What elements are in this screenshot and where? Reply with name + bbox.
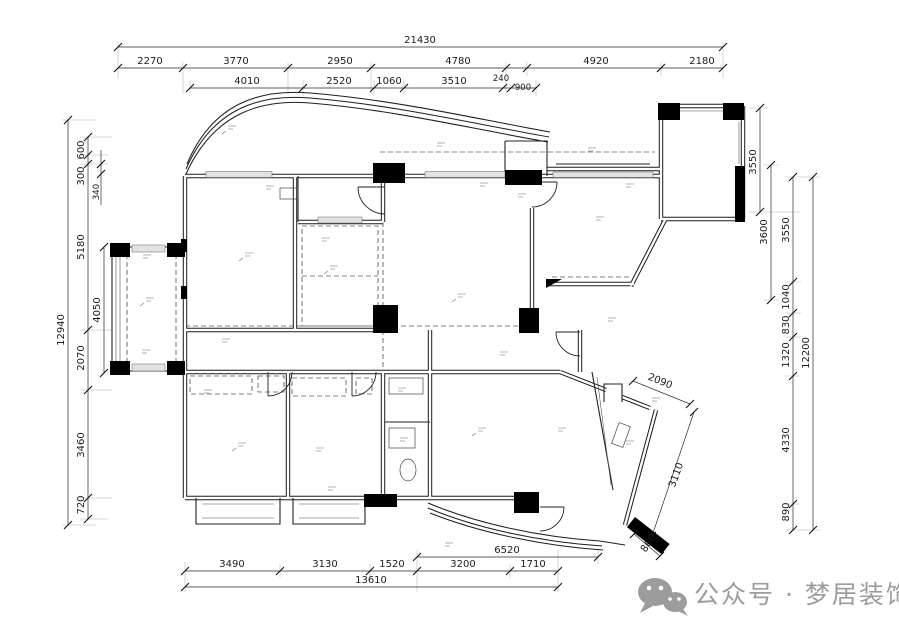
dim-left-6: 720 <box>76 495 87 514</box>
dim-right-inner-2: 3600 <box>759 219 770 244</box>
dim-angled-1: 2090 <box>646 372 674 392</box>
dim-left-4: 2070 <box>76 345 87 370</box>
watermark: 公众号 · 梦居装饰 <box>638 578 899 616</box>
dim-left-2: 300 <box>76 166 87 185</box>
dimensions-bottom: 6520 3490 3130 1520 3200 1710 13610 2090… <box>181 372 698 591</box>
dashed-features <box>127 152 655 396</box>
dim-right-total: 12200 <box>801 337 812 369</box>
floorplan-svg: 21430 2270 3770 2950 4780 4920 2180 4010… <box>0 0 899 635</box>
fixtures <box>389 378 630 481</box>
dim-left-total: 12940 <box>56 314 67 346</box>
dimensions-right: 3550 3600 3550 1040 830 1320 4330 890 12… <box>748 104 817 534</box>
extension-lines <box>62 42 820 592</box>
dim-angled-2: 3110 <box>667 461 686 489</box>
dim-top-3: 2950 <box>327 56 352 67</box>
dim-top2-1: 4010 <box>234 76 259 87</box>
walls <box>185 106 743 525</box>
dim-bottom-5: 1710 <box>520 559 545 570</box>
dim-top2-2: 2520 <box>326 76 351 87</box>
dim-bottom-1: 3490 <box>219 559 244 570</box>
dim-bottom-4: 3200 <box>450 559 475 570</box>
dimensions-left: 12940 600 300 5180 2070 3460 720 340 405… <box>56 116 108 529</box>
dim-right-2: 1040 <box>781 284 792 309</box>
dim-right-inner-1: 3550 <box>748 149 759 174</box>
dim-top2-6: 900 <box>515 83 531 93</box>
dim-right-5: 4330 <box>781 427 792 452</box>
dim-right-6: 890 <box>781 502 792 521</box>
dim-bottom-2: 3130 <box>312 559 337 570</box>
floorplan-canvas: 21430 2270 3770 2950 4780 4920 2180 4010… <box>0 0 899 635</box>
dim-left-inner-1: 340 <box>92 184 102 200</box>
dim-top-total: 21430 <box>404 35 436 46</box>
dim-right-4: 1320 <box>781 342 792 367</box>
balcony-curves <box>186 92 625 550</box>
watermark-text: 公众号 · 梦居装饰 <box>694 580 899 609</box>
dim-top2-5: 240 <box>493 74 509 84</box>
dim-left-5: 3460 <box>76 432 87 457</box>
dim-top-1: 2270 <box>137 56 162 67</box>
windows <box>132 172 653 372</box>
dim-top2-3: 1060 <box>376 76 401 87</box>
dim-bottom-total: 13610 <box>355 575 387 586</box>
dim-left-inner-2: 4050 <box>92 297 103 322</box>
wechat-icon <box>638 578 688 616</box>
dim-top-4: 4780 <box>445 56 470 67</box>
dim-left-3: 5180 <box>76 234 87 259</box>
dim-left-1: 600 <box>76 140 87 159</box>
dimensions-top: 21430 2270 3770 2950 4780 4920 2180 4010… <box>114 35 727 93</box>
dim-bottom-3: 1520 <box>379 559 404 570</box>
dim-top-6: 2180 <box>689 56 714 67</box>
dim-top2-4: 3510 <box>441 76 466 87</box>
dim-bottom-upper: 6520 <box>494 545 519 556</box>
dim-top-5: 4920 <box>583 56 608 67</box>
dim-top-2: 3770 <box>223 56 248 67</box>
dim-right-1: 3550 <box>781 217 792 242</box>
dim-right-3: 830 <box>781 315 792 334</box>
